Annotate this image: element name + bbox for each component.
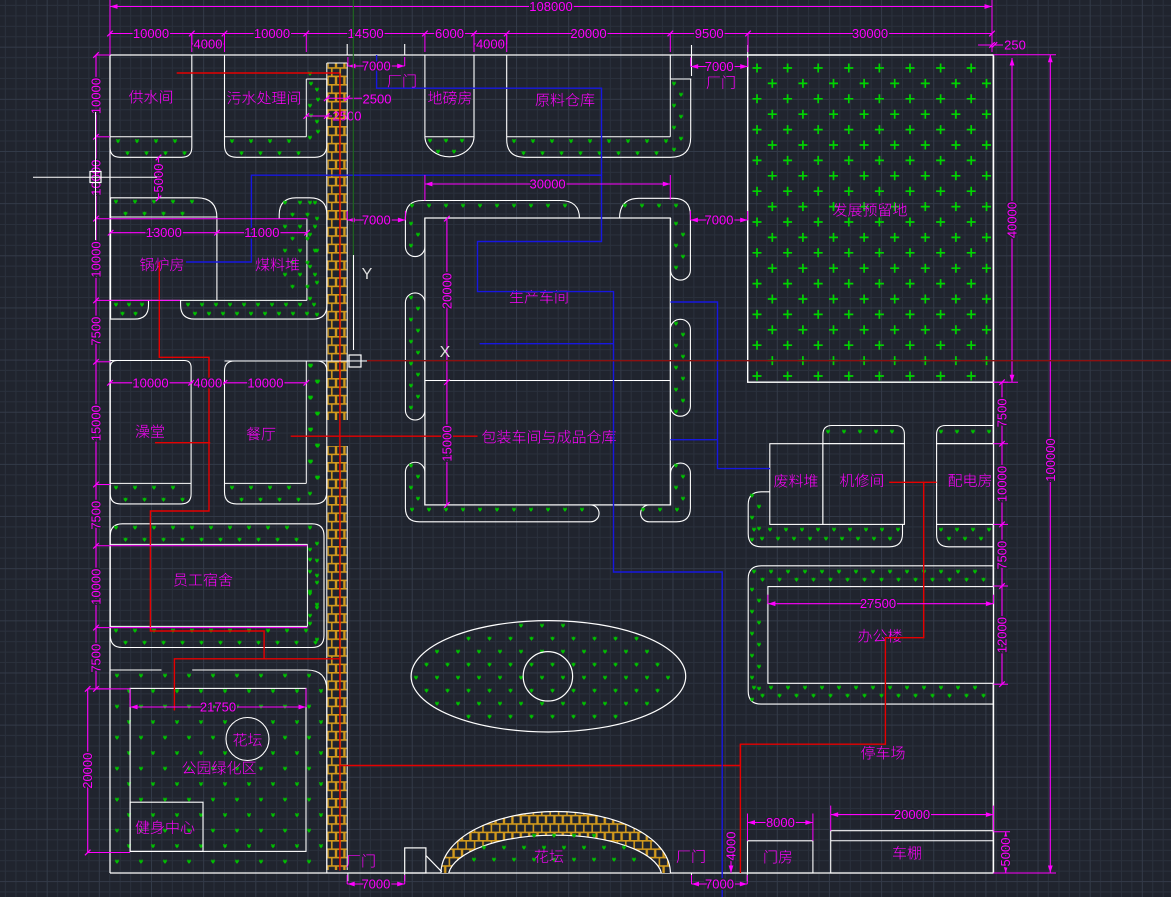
- svg-text:7500: 7500: [89, 501, 104, 530]
- svg-text:5000: 5000: [998, 838, 1013, 867]
- svg-text:2500: 2500: [333, 109, 362, 124]
- svg-text:10000: 10000: [247, 375, 283, 390]
- svg-text:30000: 30000: [530, 177, 566, 192]
- svg-text:7000: 7000: [361, 877, 390, 892]
- svg-text:8000: 8000: [766, 815, 795, 830]
- svg-text:4000: 4000: [194, 37, 223, 52]
- svg-text:10000: 10000: [254, 26, 290, 41]
- svg-text:9500: 9500: [695, 26, 724, 41]
- svg-text:10000: 10000: [89, 241, 104, 277]
- svg-text:7000: 7000: [362, 59, 391, 74]
- svg-text:40000: 40000: [1005, 202, 1020, 238]
- svg-text:7000: 7000: [705, 59, 734, 74]
- svg-text:11000: 11000: [244, 225, 279, 240]
- svg-text:7000: 7000: [362, 213, 391, 228]
- svg-text:30000: 30000: [852, 26, 888, 41]
- svg-text:10000: 10000: [133, 26, 169, 41]
- svg-text:X: X: [440, 344, 451, 361]
- svg-text:4000: 4000: [476, 37, 505, 52]
- svg-text:7500: 7500: [995, 541, 1010, 570]
- svg-text:5000: 5000: [151, 164, 166, 193]
- svg-text:7500: 7500: [89, 644, 104, 673]
- svg-text:2500: 2500: [363, 92, 392, 107]
- svg-text:7000: 7000: [705, 213, 734, 228]
- svg-text:7500: 7500: [995, 398, 1010, 427]
- svg-text:7000: 7000: [705, 877, 734, 892]
- svg-text:13000: 13000: [146, 225, 182, 240]
- svg-text:20000: 20000: [894, 807, 930, 822]
- svg-text:20000: 20000: [440, 273, 455, 309]
- svg-text:12000: 12000: [995, 617, 1010, 653]
- svg-text:108000: 108000: [529, 0, 572, 14]
- svg-text:21750: 21750: [200, 700, 236, 715]
- svg-text:10000: 10000: [89, 78, 104, 114]
- svg-text:20000: 20000: [570, 26, 606, 41]
- svg-text:10000: 10000: [89, 569, 104, 605]
- svg-text:27500: 27500: [860, 596, 896, 611]
- svg-text:10000: 10000: [132, 375, 168, 390]
- svg-text:20000: 20000: [80, 753, 95, 789]
- svg-text:15000: 15000: [89, 405, 104, 441]
- svg-text:4000: 4000: [724, 832, 739, 861]
- svg-text:15000: 15000: [440, 425, 455, 461]
- svg-text:Y: Y: [362, 266, 373, 283]
- svg-text:4000: 4000: [193, 375, 222, 390]
- svg-text:6000: 6000: [435, 26, 464, 41]
- svg-text:250: 250: [1004, 38, 1026, 53]
- svg-text:10000: 10000: [995, 466, 1010, 502]
- svg-text:100000: 100000: [1043, 438, 1058, 481]
- svg-text:7500: 7500: [89, 317, 104, 346]
